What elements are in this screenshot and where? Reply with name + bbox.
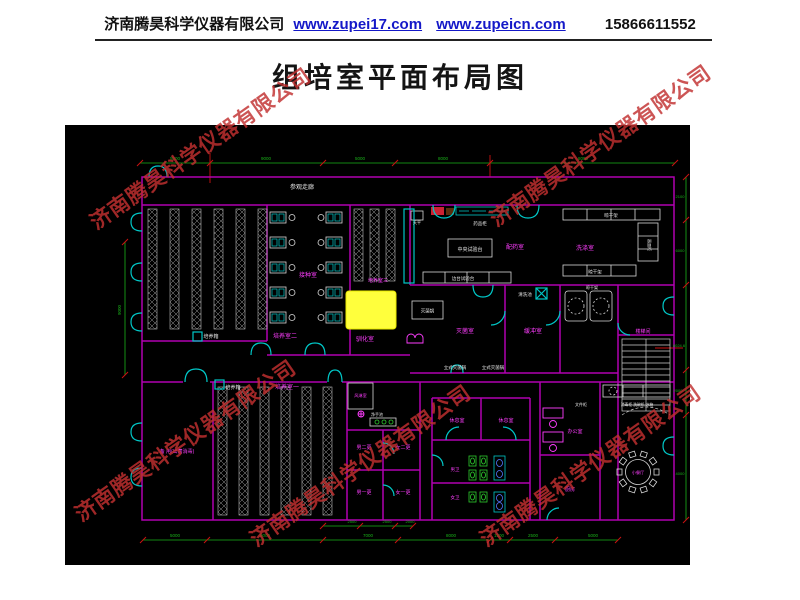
plan-label: 立式灭菌锅	[444, 364, 467, 371]
plan-label: 灭菌锅	[421, 308, 435, 315]
plan-label: 男卫	[451, 467, 460, 473]
plan-label: 风淋室	[354, 392, 367, 399]
plan-label: 休息室	[498, 417, 513, 424]
plan-label: 中央试验台	[457, 246, 482, 253]
plan-label: 男二更	[356, 445, 371, 451]
phone-number: 15866611552	[605, 16, 696, 33]
plan-label: 备 用(出菌消毒)	[160, 448, 195, 455]
floor-plan-svg: 参观走廊培养箱培养室二培养箱培养室一备 用(出菌消毒)接种室培养室三驯化室天平药…	[65, 125, 690, 565]
plan-label: 9000	[117, 304, 122, 315]
plan-label: 4000	[676, 471, 686, 476]
page-title: 组培室平面布局图	[0, 56, 800, 96]
plan-label: 8000	[438, 156, 449, 161]
dimension-lines	[122, 153, 689, 543]
toilet-fixtures	[375, 420, 505, 512]
plan-label: 2500	[528, 533, 539, 538]
plan-label: 灭菌室	[456, 327, 474, 335]
plan-label: 1500	[494, 533, 505, 538]
plan-label: 2000	[674, 388, 684, 393]
plan-label: 5000	[170, 533, 181, 538]
plan-label: 楼梯间	[635, 328, 650, 335]
plan-label: 晾干架	[586, 284, 598, 290]
clean-benches	[270, 212, 342, 323]
plan-label: 立式灭菌锅	[482, 364, 505, 371]
plan-label: 8024.6	[673, 343, 686, 348]
plan-label: 参观走廊	[290, 183, 314, 191]
plan-label: 晾干架	[588, 269, 602, 276]
plan-label: 器皿柜	[647, 239, 653, 251]
yellow-highlight-marker	[346, 291, 396, 329]
company-name: 济南腾昊科学仪器有限公司	[104, 16, 284, 33]
plan-label: 缓冲室	[524, 327, 542, 335]
plan-label: 边台试验台	[452, 275, 475, 282]
plan-label: 2500	[348, 519, 358, 524]
link-zupei17[interactable]: www.zupei17.com	[293, 16, 422, 33]
plan-label: 女卫	[451, 494, 460, 501]
office-desks-and-fixtures	[358, 334, 563, 452]
plan-label: 8000	[578, 156, 589, 161]
plan-label: 净手池	[371, 411, 383, 417]
header-text-line: 济南腾昊科学仪器有限公司 www.zupei17.com www.zupeicn…	[0, 13, 800, 34]
floor-plan-canvas: 参观走廊培养箱培养室二培养箱培养室一备 用(出菌消毒)接种室培养室三驯化室天平药…	[65, 125, 690, 565]
plan-label: 6000	[676, 248, 686, 253]
plan-label: 天平	[413, 220, 421, 225]
plan-label: 女一更	[395, 489, 410, 496]
plan-label: 培养箱	[203, 333, 218, 340]
plan-label: 2100	[676, 194, 686, 199]
plan-label: 晾干架	[604, 212, 618, 219]
plan-label: 9000	[261, 156, 272, 161]
plan-label: 2500	[383, 519, 393, 524]
plan-label: 培养箱	[225, 384, 240, 391]
plan-label: 9000	[260, 533, 271, 538]
header-divider	[95, 39, 712, 41]
plan-label: 2000	[406, 519, 416, 524]
plan-label: 8000	[446, 533, 457, 538]
plan-label: 5000	[588, 533, 599, 538]
plan-label: 清洗池	[518, 291, 532, 298]
plan-label: 驯化室	[356, 335, 374, 343]
plan-label: 洗涤室	[576, 244, 594, 252]
plan-label: 接种室	[299, 271, 317, 279]
plan-label: 办公室	[567, 428, 582, 435]
plan-label: 文件柜	[575, 401, 587, 407]
plan-label: 培养室三	[368, 277, 388, 284]
plan-label: 5000	[355, 156, 366, 161]
plan-label: 男一更	[356, 490, 371, 496]
plan-label: 培养室二	[273, 332, 297, 340]
plan-label: 小餐厅	[632, 469, 645, 476]
plan-label: 消毒柜 洗碗机 冰箱	[621, 402, 654, 407]
plan-label: 女二更	[395, 444, 410, 451]
plan-label: 药品柜	[473, 220, 487, 227]
culture-racks	[148, 209, 395, 515]
plan-label: 配药室	[506, 243, 524, 251]
plan-label: 5000	[170, 156, 181, 161]
plan-label: 厨房	[565, 486, 575, 493]
link-zupeicn[interactable]: www.zupeicn.com	[436, 16, 565, 33]
plan-label: 休息室	[449, 417, 464, 424]
plan-label: 7000	[363, 533, 374, 538]
plan-label: 培养室一	[275, 383, 299, 391]
